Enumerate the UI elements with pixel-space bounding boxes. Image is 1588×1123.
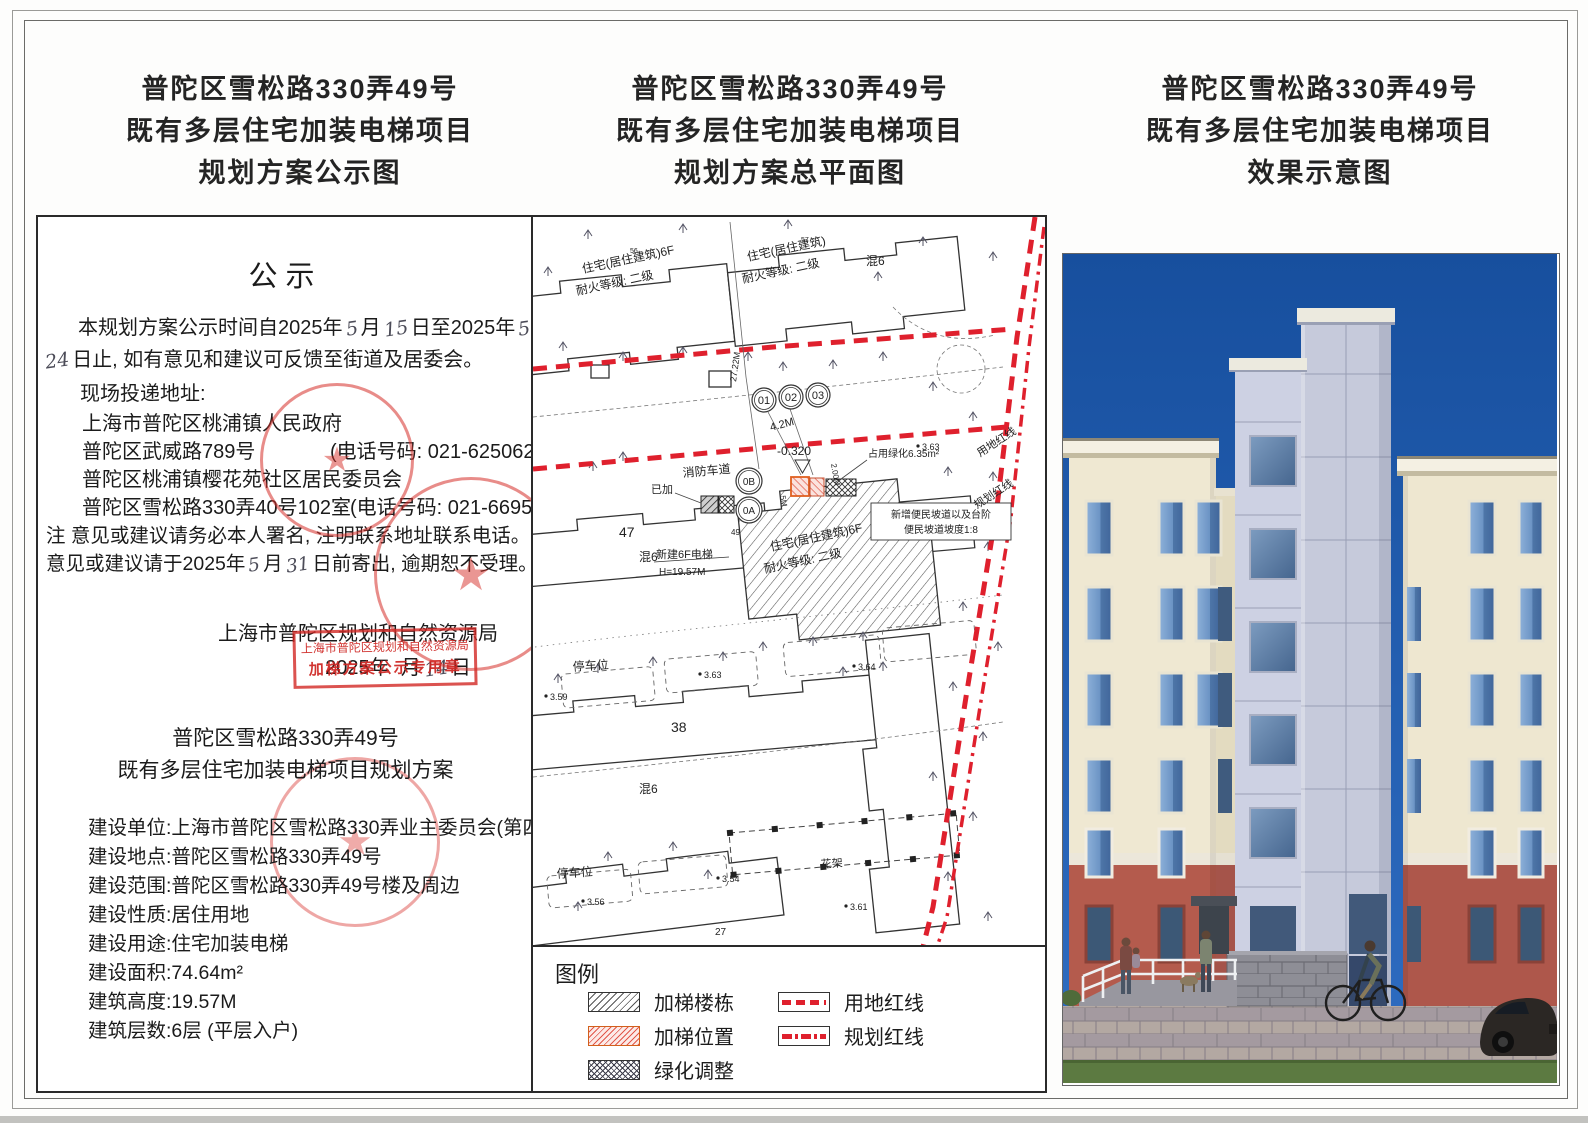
grass-edge (1063, 1060, 1557, 1063)
trellis-label: 花架 (820, 856, 843, 871)
elevation-value: -0.320 (777, 444, 811, 458)
title-line: 普陀区雪松路330弄49号 (60, 68, 540, 110)
project-row-location: 建设地点:普陀区雪松路330弄49号 (88, 840, 382, 869)
field-value: 普陀区雪松路330弄49号 (171, 846, 381, 868)
spot-elevation: 3.56 (587, 897, 605, 907)
elevator-tower-tall-section (1297, 308, 1395, 1006)
spot-elevation: 3.63 (704, 670, 722, 680)
legend-item-land-red-line: 用地红线 (778, 987, 924, 1016)
field-value: 74.64m² (171, 962, 243, 984)
legend-title: 图例 (555, 957, 599, 989)
address-text: 普陀区雪松路330弄40号102室 (82, 497, 351, 519)
grass-strip (1063, 1063, 1557, 1083)
left-column-title: 普陀区雪松路330弄49号 既有多层住宅加装电梯项目 规划方案公示图 (60, 68, 540, 194)
orange-hatch-swatch (588, 1026, 640, 1046)
existing-elevator-label: 已加 (651, 483, 673, 496)
handwritten-day: 14 (419, 656, 452, 682)
handwritten-day: 24 (41, 348, 74, 374)
unit-circle-label: 01 (758, 395, 770, 407)
recess-windows (1218, 587, 1232, 813)
dimension-label: 27.22M (728, 351, 742, 382)
unit-circle-label: 03 (812, 390, 824, 402)
field-label: 建筑高度: (88, 991, 171, 1013)
field-label: 建设单位: (88, 817, 171, 839)
field-label: 建设面积: (88, 962, 171, 984)
scanned-notice-page: 普陀区雪松路330弄49号 既有多层住宅加装电梯项目 规划方案公示图 普陀区雪松… (0, 0, 1588, 1123)
field-value: 6层 (平层入户) (171, 1020, 298, 1042)
rendering-panel (1062, 253, 1560, 1086)
crosshatch-swatch (588, 1060, 640, 1080)
title-line: 既有多层住宅加装电梯项目 (60, 110, 540, 152)
structure-type-label: 混6 (866, 254, 885, 268)
date-text: 日 (451, 657, 471, 679)
spot-elevation: 3.59 (550, 692, 568, 702)
legend-label: 加梯位置 (654, 1021, 734, 1050)
project-row-floors: 建筑层数:6层 (平层入户) (88, 1014, 298, 1043)
notice-text: 日至2025年 (411, 317, 516, 339)
title-line: 规划方案公示图 (60, 152, 540, 194)
field-value: 居住用地 (171, 904, 249, 926)
middle-column-title: 普陀区雪松路330弄49号 既有多层住宅加装电梯项目 规划方案总平面图 (550, 68, 1030, 194)
scan-edge-shadow (0, 1116, 1588, 1123)
title-line: 规划方案总平面图 (550, 152, 1030, 194)
project-title-line1: 普陀区雪松路330弄49号 (58, 722, 513, 752)
spot-elevation: 3.64 (858, 662, 876, 672)
map-legend: 图例 加梯楼栋 加梯位置 绿化调整 用地红线 规划红线 (533, 945, 1045, 1091)
legend-label: 用地红线 (844, 987, 924, 1016)
spot-elevation: 3.54 (722, 874, 740, 884)
notice-line-1: 本规划方案公示时间自2025年5月15日至2025年5月 (78, 311, 553, 340)
spot-elevation: 3.61 (850, 902, 868, 912)
field-label: 建设性质: (88, 904, 171, 926)
phone-number: (电话号码: 021-62506213) (330, 435, 563, 464)
building-outlines (533, 237, 975, 947)
field-label: 建筑层数: (88, 1020, 171, 1042)
notice-text: 月 (263, 553, 283, 575)
field-label: 建设地点: (88, 846, 171, 868)
handwritten-day: 31 (282, 553, 314, 578)
building-number: 49 (731, 528, 740, 537)
project-row-scope: 建设范围:普陀区雪松路330弄49号楼及周边 (88, 869, 460, 898)
handwritten-month: 5 (341, 317, 362, 341)
legend-label: 规划红线 (844, 1021, 924, 1050)
legend-item-planning-red-line: 规划红线 (778, 1021, 924, 1050)
right-column-title: 普陀区雪松路330弄49号 既有多层住宅加装电梯项目 效果示意图 (1080, 68, 1560, 194)
project-row-nature: 建设性质:居住用地 (88, 898, 249, 927)
field-label: 建设用途: (88, 933, 171, 955)
existing-elevator-square (719, 496, 734, 513)
date-text: 月 (401, 657, 421, 679)
spot-elevation: 3.63 (922, 442, 940, 452)
notice-text: 月 (361, 317, 381, 339)
handwritten-day: 15 (379, 316, 412, 342)
address-text: 普陀区武威路789号 (82, 441, 255, 463)
legend-label: 加梯楼栋 (654, 987, 734, 1016)
red-dash-swatch (778, 992, 830, 1012)
red-dashdot-swatch (778, 1026, 830, 1046)
notice-line-9: 意见或建议请于2025年5月31日前寄出, 逾期恕不受理。 (46, 547, 538, 576)
notice-line-8: 注 意见或建议请务必本人署名, 注明联系地址联系电话。 (46, 519, 530, 548)
notice-line-3: 现场投递地址: (80, 377, 206, 406)
authority-name: 上海市普陀区规划和自然资源局 (168, 617, 548, 646)
legend-label: 绿化调整 (654, 1055, 734, 1084)
notice-text: 意见或建议请于2025年 (46, 553, 245, 575)
block-wall-cap (1227, 951, 1347, 955)
notice-line-4: 上海市普陀区桃浦镇人民政府 (82, 407, 342, 436)
dimension-label: 4.2M (769, 416, 796, 434)
parking-label: 停车位 (556, 864, 593, 881)
project-title-line2: 既有多层住宅加装电梯项目规划方案 (58, 754, 513, 784)
notice-text: 本规划方案公示时间自2025年 (78, 317, 343, 339)
field-value: 住宅加装电梯 (171, 933, 288, 955)
project-row-unit: 建设单位:上海市普陀区雪松路330弄业主委员会(第四届) (88, 811, 568, 840)
dimension-label: 5M (778, 495, 789, 508)
project-row-use: 建设用途:住宅加装电梯 (88, 927, 288, 956)
notice-line-2: 24日止, 如有意见和建议可反馈至街道及居委会。 (42, 343, 483, 372)
title-line: 效果示意图 (1080, 152, 1560, 194)
title-line: 既有多层住宅加装电梯项目 (550, 110, 1030, 152)
legend-item-greenery-adjustment: 绿化调整 (588, 1055, 734, 1084)
building-number: 47 (619, 524, 635, 540)
ramp-note-line: 新增便民坡道以及台阶 (891, 508, 991, 521)
notice-line-6: 普陀区桃浦镇樱花苑社区居民委员会 (82, 463, 402, 492)
date-text: 2025年 (325, 657, 390, 679)
title-line: 普陀区雪松路330弄49号 (550, 68, 1030, 110)
legend-item-elevator-position: 加梯位置 (588, 1021, 734, 1050)
diagonal-hatch-swatch (588, 992, 640, 1012)
notice-text: 日止, 如有意见和建议可反馈至街道及居委会。 (72, 349, 483, 371)
new-elevator-position (791, 477, 809, 496)
site-plan-drawing: 56 住宅(居住建筑)6F 耐火等级: 二级 57 住宅(居住建筑) 耐火等级:… (533, 217, 1045, 947)
building-label: 住宅(居住建筑)6F (581, 242, 676, 276)
elevator-tower-glass-section (1229, 358, 1307, 1006)
building-rendering (1063, 254, 1557, 1083)
fire-lane-label: 消防车道 (682, 461, 731, 480)
structure-type-label: 混6 (639, 782, 658, 796)
project-row-height: 建筑高度:19.57M (88, 985, 236, 1014)
date-line: 2025年 月14日 (248, 651, 548, 680)
title-line: 普陀区雪松路330弄49号 (1080, 68, 1560, 110)
parking-label: 停车位 (572, 657, 609, 674)
notice-heading: 公示 (38, 253, 533, 295)
field-label: 建设范围: (88, 875, 171, 897)
field-value: 上海市普陀区雪松路330弄业主委员会(第四届) (171, 817, 568, 839)
building-number: 27 (715, 927, 727, 938)
unit-circle-label: 02 (785, 392, 797, 404)
field-value: 普陀区雪松路330弄49号楼及周边 (171, 875, 459, 897)
new-elevator-height: H=19.57M (659, 567, 705, 578)
block-wall (1227, 954, 1347, 1006)
notice-line-7: 普陀区雪松路330弄40号102室 (电话号码: 021-66951786) (82, 491, 351, 520)
site-plan-panel: 56 住宅(居住建筑)6F 耐火等级: 二级 57 住宅(居住建筑) 耐火等级:… (531, 215, 1047, 1093)
new-elevator-position (810, 478, 824, 496)
elevation-marker (795, 460, 810, 473)
field-value: 19.57M (171, 991, 236, 1013)
project-row-area: 建设面积:74.64m² (88, 956, 243, 985)
notice-text: 日前寄出, 逾期恕不受理。 (312, 553, 537, 575)
legend-item-elevator-building: 加梯楼栋 (588, 987, 734, 1016)
notice-line-5: 普陀区武威路789号 (电话号码: 021-62506213) (82, 435, 255, 464)
building-number: 38 (671, 719, 687, 735)
unit-circle-label: 0A (743, 506, 756, 517)
unit-circle-label: 0B (743, 477, 756, 488)
title-line: 既有多层住宅加装电梯项目 (1080, 110, 1560, 152)
notice-panel: 公示 本规划方案公示时间自2025年5月15日至2025年5月 24日止, 如有… (36, 215, 535, 1093)
ramp-note-line: 便民坡道坡度1:8 (904, 523, 978, 536)
handwritten-month: 5 (244, 554, 265, 577)
existing-elevator-square (701, 496, 718, 513)
